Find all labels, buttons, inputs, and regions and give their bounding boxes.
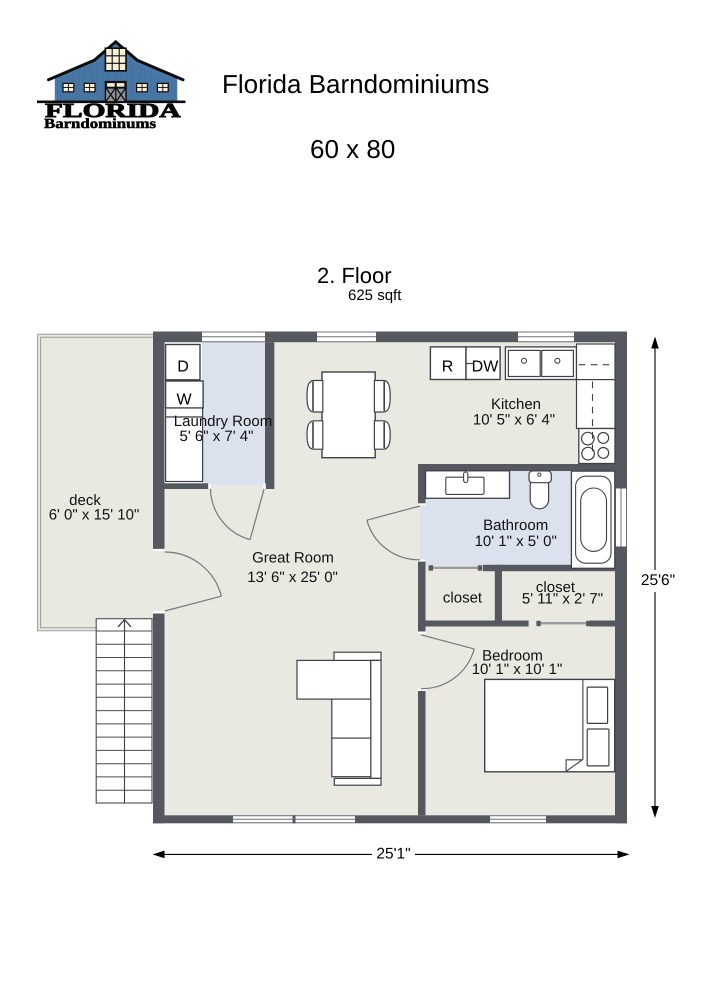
- svg-text:5' 11" x 2' 7": 5' 11" x 2' 7": [522, 590, 603, 607]
- svg-text:6' 0" x 15' 10": 6' 0" x 15' 10": [49, 507, 140, 524]
- svg-text:5' 6" x 7' 4": 5' 6" x 7' 4": [180, 428, 254, 445]
- svg-text:10' 5" x 6' 4": 10' 5" x 6' 4": [473, 412, 555, 429]
- svg-text:Bathroom: Bathroom: [483, 517, 548, 534]
- svg-text:13' 6" x 25' 0": 13' 6" x 25' 0": [247, 569, 338, 586]
- svg-text:25'6": 25'6": [641, 572, 675, 589]
- svg-text:10' 1" x 5' 0": 10' 1" x 5' 0": [475, 533, 557, 550]
- svg-text:25'1": 25'1": [376, 846, 410, 863]
- svg-text:10' 1" x 10' 1": 10' 1" x 10' 1": [472, 661, 563, 678]
- svg-text:DW: DW: [472, 359, 500, 376]
- svg-text:W: W: [176, 392, 192, 409]
- svg-text:D: D: [177, 359, 189, 376]
- svg-text:closet: closet: [443, 590, 483, 607]
- svg-text:Great Room: Great Room: [252, 550, 334, 567]
- svg-text:R: R: [442, 359, 454, 376]
